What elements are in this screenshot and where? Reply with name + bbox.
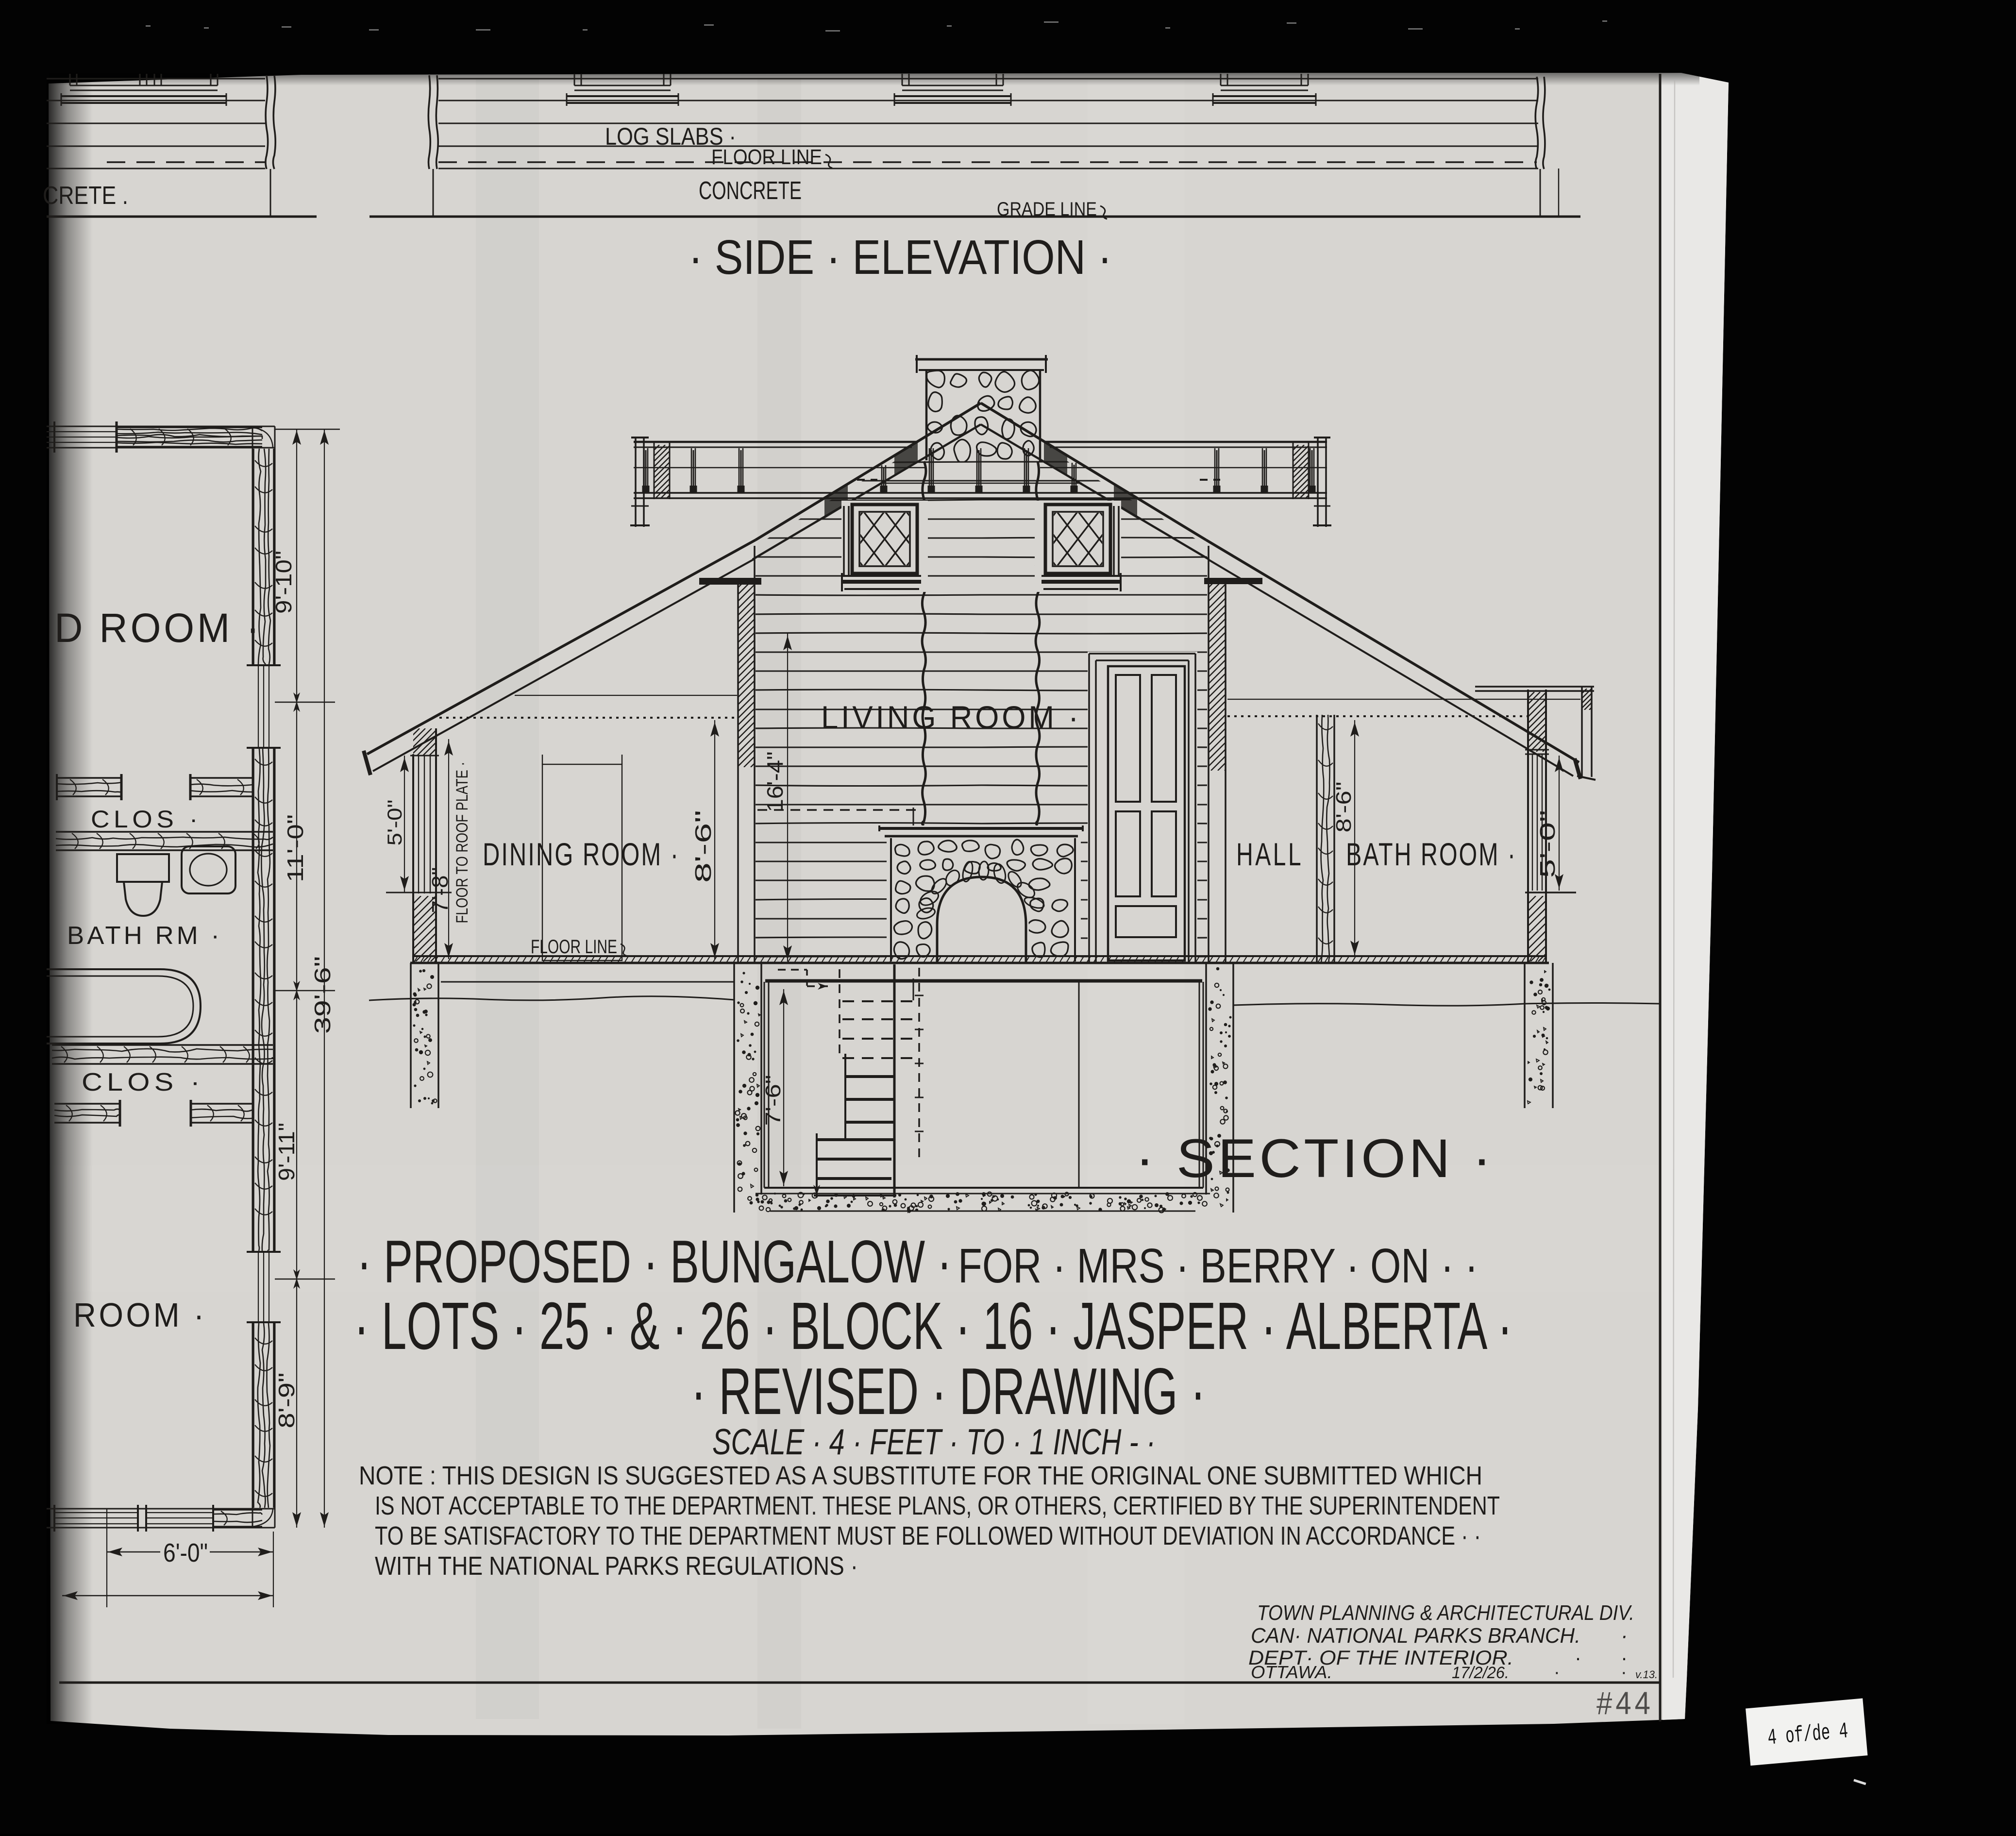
- svg-text:9'-10": 9'-10": [271, 551, 296, 614]
- svg-text:CRETE .: CRETE .: [43, 182, 128, 210]
- svg-text:8'-6": 8'-6": [1332, 782, 1356, 833]
- svg-text:· LOTS · 25 · & · 26 · BLOCK ·: · LOTS · 25 · & · 26 · BLOCK · 16 · JASP…: [354, 1289, 1512, 1364]
- svg-text:·: ·: [1554, 1662, 1560, 1683]
- svg-text:TO BE SATISFACTORY TO THE: TO BE SATISFACTORY TO THE DEPARTMENT MUS…: [375, 1521, 1481, 1550]
- svg-text:7'-6": 7'-6": [761, 1075, 785, 1126]
- svg-text:v.13.: v.13.: [1635, 1668, 1658, 1681]
- svg-text:·: ·: [1621, 1662, 1627, 1683]
- svg-text:NOTE : THIS DESIGN IS SUGG: NOTE : THIS DESIGN IS SUGGESTED AS A SUB…: [359, 1461, 1482, 1490]
- svg-text:5'-0": 5'-0": [1536, 810, 1560, 878]
- svg-text:FLOOR LINE: FLOOR LINE: [711, 145, 822, 169]
- svg-text:· SECTION ·: · SECTION ·: [1135, 1128, 1495, 1189]
- svg-text:·: ·: [1621, 1624, 1628, 1648]
- svg-text:#44: #44: [1596, 1685, 1654, 1721]
- svg-text:16'-4": 16'-4": [762, 752, 788, 812]
- svg-text:DINING ROOM ·: DINING ROOM ·: [483, 836, 680, 872]
- svg-text:D ROOM ·: D ROOM ·: [54, 605, 262, 651]
- svg-text:17/2/26.: 17/2/26.: [1452, 1664, 1509, 1682]
- svg-text:CONCRETE: CONCRETE: [699, 177, 802, 205]
- svg-text:BATH RM ·: BATH RM ·: [67, 922, 222, 950]
- svg-text:LIVING ROOM ·: LIVING ROOM ·: [821, 699, 1081, 735]
- svg-text:BATH ROOM ·: BATH ROOM ·: [1346, 836, 1517, 872]
- svg-text:FOR · MRS · BERRY · ON · ·: FOR · MRS · BERRY · ON · ·: [958, 1239, 1478, 1293]
- svg-text:8'-6": 8'-6": [690, 810, 716, 883]
- svg-text:CAN· NATIONAL PARKS BRANCH.: CAN· NATIONAL PARKS BRANCH.: [1251, 1624, 1580, 1648]
- svg-text:OTTAWA.: OTTAWA.: [1251, 1662, 1332, 1682]
- svg-text:HALL: HALL: [1236, 836, 1303, 872]
- svg-text:CLOS ·: CLOS ·: [82, 1068, 204, 1096]
- svg-text:9'-11": 9'-11": [274, 1123, 299, 1181]
- svg-text:· SIDE · ELEVATION ·: · SIDE · ELEVATION ·: [689, 230, 1112, 285]
- svg-text:TOWN PLANNING & ARCHITECTURAL: TOWN PLANNING & ARCHITECTURAL DIV.: [1257, 1601, 1634, 1625]
- svg-text:SCALE · 4 · FEET · TO · 1 INCH: SCALE · 4 · FEET · TO · 1 INCH - ·: [712, 1421, 1156, 1462]
- svg-text:FLOOR LINE: FLOOR LINE: [531, 936, 617, 958]
- svg-text:FLOOR TO ROOF PLATE ·: FLOOR TO ROOF PLATE ·: [453, 762, 471, 924]
- svg-text:· PROPOSED · BUNGALOW ·: · PROPOSED · BUNGALOW ·: [357, 1229, 952, 1296]
- svg-text:·: ·: [1575, 1646, 1581, 1669]
- svg-text:7'-8": 7'-8": [427, 867, 453, 913]
- svg-text:· REVISED · DRAWING ·: · REVISED · DRAWING ·: [691, 1354, 1206, 1428]
- svg-text:8'-9": 8'-9": [274, 1373, 299, 1429]
- svg-text:GRADE LINE: GRADE LINE: [997, 199, 1097, 220]
- svg-text:6'-0": 6'-0": [163, 1538, 208, 1567]
- svg-text:ROOM ·: ROOM ·: [73, 1296, 207, 1334]
- svg-text:5'-0": 5'-0": [383, 800, 406, 846]
- svg-text:WITH THE NATIONAL PARKS RE: WITH THE NATIONAL PARKS REGULATIONS ·: [375, 1551, 858, 1581]
- svg-text:CLOS ·: CLOS ·: [91, 806, 202, 833]
- svg-text:IS NOT ACCEPTABLE TO THE: IS NOT ACCEPTABLE TO THE DEPARTMENT. THE…: [375, 1491, 1500, 1520]
- svg-text:39'-6": 39'-6": [310, 956, 335, 1034]
- svg-text:11'-0": 11'-0": [283, 814, 308, 882]
